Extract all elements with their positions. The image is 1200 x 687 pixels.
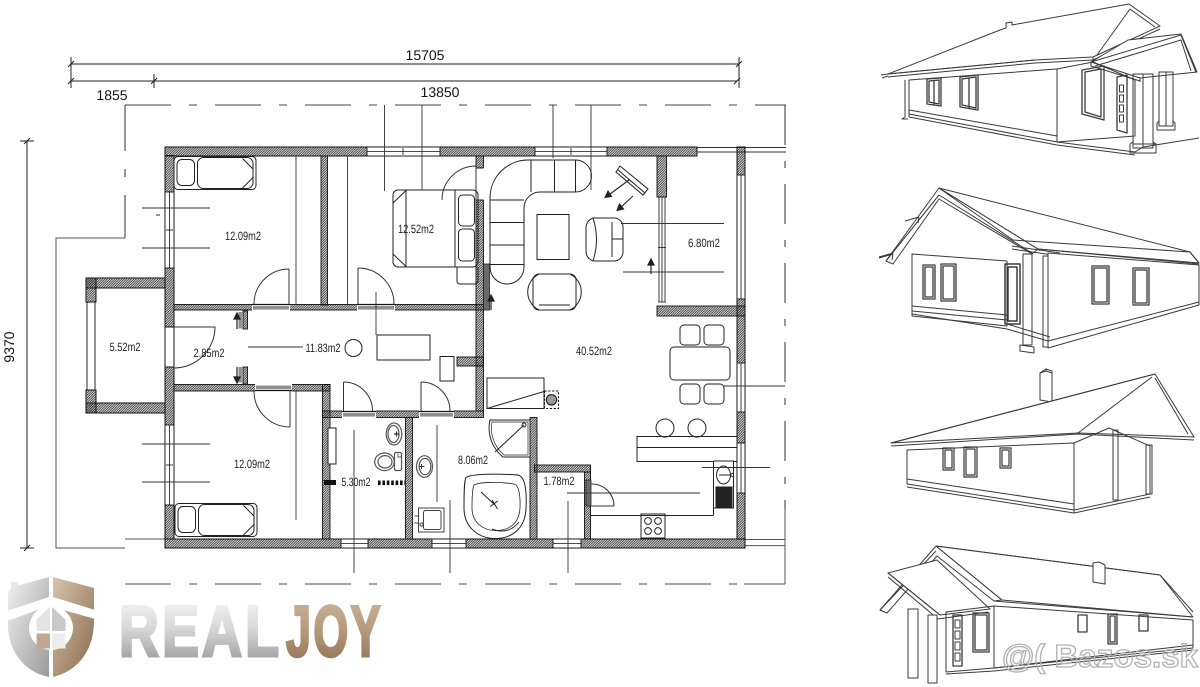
svg-text:12.09m2: 12.09m2 bbox=[234, 457, 270, 471]
svg-text:1855: 1855 bbox=[96, 87, 127, 103]
svg-text:12.52m2: 12.52m2 bbox=[398, 222, 434, 236]
svg-text:13850: 13850 bbox=[421, 84, 460, 100]
svg-text:11.83m2: 11.83m2 bbox=[306, 341, 341, 355]
svg-text:8.06m2: 8.06m2 bbox=[458, 453, 488, 467]
svg-text:5.52m2: 5.52m2 bbox=[110, 340, 141, 354]
svg-text:9370: 9370 bbox=[1, 331, 17, 362]
svg-text:6.80m2: 6.80m2 bbox=[688, 236, 720, 250]
svg-text:15705: 15705 bbox=[406, 47, 445, 63]
svg-text:JOY: JOY bbox=[286, 592, 383, 672]
svg-text:40.52m2: 40.52m2 bbox=[576, 344, 612, 358]
svg-text:2.85m2: 2.85m2 bbox=[194, 346, 225, 360]
svg-text:REAL: REAL bbox=[119, 592, 282, 672]
svg-text:5.30m2: 5.30m2 bbox=[342, 475, 371, 489]
svg-text:12.09m2: 12.09m2 bbox=[225, 229, 261, 243]
svg-text:@( Bazos.sk: @( Bazos.sk bbox=[1002, 638, 1198, 674]
svg-text:1.78m2: 1.78m2 bbox=[544, 474, 575, 488]
